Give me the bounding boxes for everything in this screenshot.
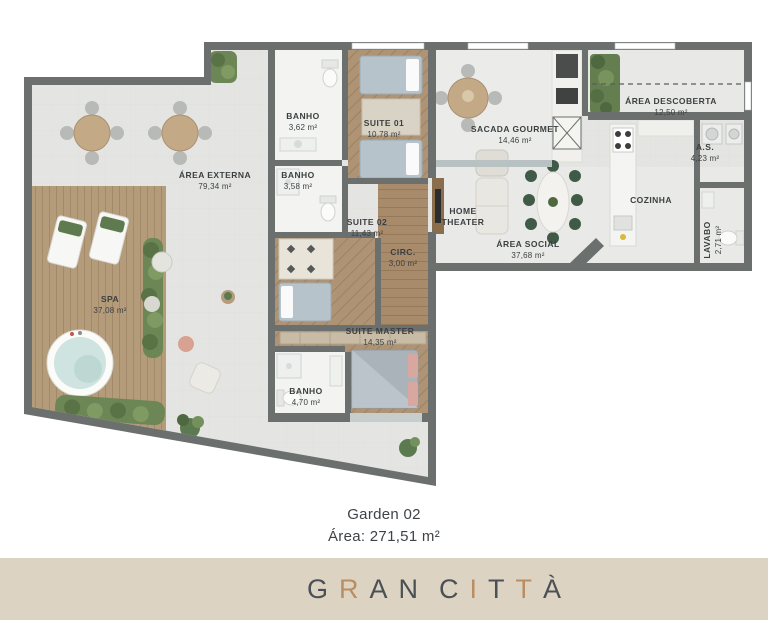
label-banho2-area: 3,58 m² [284,182,313,191]
label-area-social-area: 37,68 m² [511,251,544,260]
brand-letter: C [439,574,470,604]
terrace-plant-pot [221,290,235,304]
label-banho2: BANHO [281,170,314,180]
label-circ-area: 3,00 m² [389,259,418,268]
label-spa-area: 37,08 m² [93,306,126,315]
label-suite02-area: 11,43 m² [351,229,384,238]
label-suite01-area: 10,78 m² [367,130,400,139]
label-suite-master: SUITE MASTER [346,326,415,336]
label-banho1-area: 3,62 m² [289,123,318,132]
suite01-beds [360,56,422,178]
unit-caption: Garden 02 Área: 271,51 m² [0,504,768,548]
label-sacada: SACADA GOURMET [471,124,560,134]
terrace-pouf-pink [178,336,194,352]
top-hedge [209,51,237,83]
brand-letter: À [543,574,572,604]
brand-letter: N [399,574,430,604]
label-descoberta-area: 12,50 m² [654,108,687,117]
label-suite-master-area: 14,35 m² [363,338,396,347]
label-suite02: SUITE 02 [347,217,387,227]
label-area-externa: ÁREA EXTERNA [179,170,251,180]
brand-letter [429,576,439,603]
label-banho3: BANHO [289,386,322,396]
brand-letter: T [516,574,544,604]
brand-logo: GRAN CITTÀ [196,549,572,620]
terrace-chair [152,252,172,272]
label-banho1: BANHO [286,111,319,121]
brand-letter: G [307,574,339,604]
brand-letter: A [369,574,398,604]
kitchen-counter [638,120,694,136]
label-lavabo-area: 2,71 m² [714,226,723,255]
label-lavabo: LAVABO [702,221,712,258]
label-descoberta: ÁREA DESCOBERTA [625,96,717,106]
label-cozinha: COZINHA [630,195,672,205]
brand-letter: I [470,574,489,604]
label-area-externa-area: 79,34 m² [198,182,231,191]
footer-band: GRAN CITTÀ [0,558,768,620]
brand-letter: T [488,574,516,604]
label-sacada-area: 14,46 m² [498,136,531,145]
unit-area: Área: 271,51 m² [0,526,768,548]
label-as-area: 4,23 m² [691,154,720,163]
terrace-pouf [144,296,160,312]
label-banho3-area: 4,70 m² [292,398,321,407]
page: ÁREA EXTERNA 79,34 m² SPA 37,08 m² BANHO… [0,0,768,620]
unit-name: Garden 02 [0,504,768,526]
label-home-theater-1: HOME [449,206,476,216]
label-home-theater-2: THEATER [442,217,485,227]
label-circ: CIRC. [390,247,415,257]
label-suite01: SUITE 01 [364,118,404,128]
kitchen-island [610,124,636,246]
laundry-machines [702,124,742,144]
floor-plan: ÁREA EXTERNA 79,34 m² SPA 37,08 m² BANHO… [0,0,768,556]
brand-letter: R [339,574,370,604]
spa-tub [47,330,113,396]
label-area-social: ÁREA SOCIAL [496,239,559,249]
label-as: A.S. [696,142,714,152]
label-spa: SPA [101,294,119,304]
